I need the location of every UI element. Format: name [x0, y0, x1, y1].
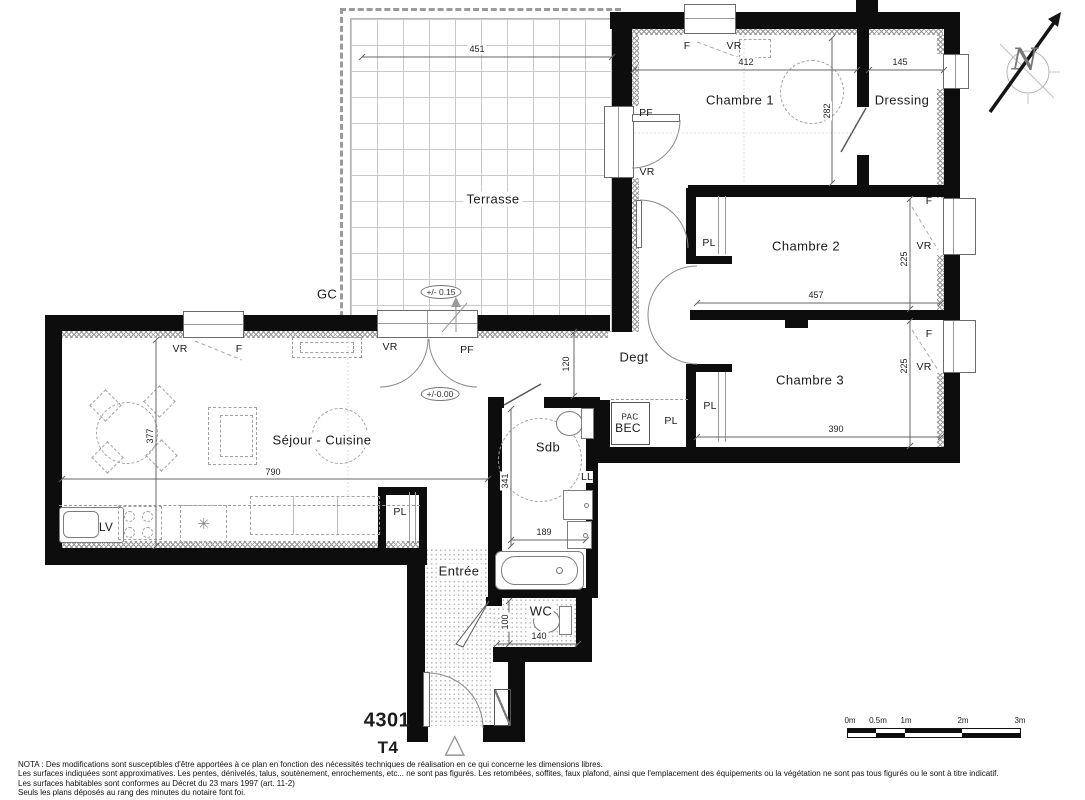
dim-degt-h: 120: [561, 354, 571, 373]
label-pl: PL: [702, 237, 715, 249]
dim-sdb-h: 341: [500, 471, 510, 490]
room-label-degt: Degt: [619, 350, 648, 365]
entry-triangle-icon: △: [444, 729, 465, 760]
dim-ch1-h: 282: [822, 101, 832, 120]
scale-label-1m: 1m: [900, 716, 911, 725]
label-vr: VR: [917, 240, 932, 252]
door-arc-chambre1: [640, 200, 688, 248]
nota-line2: Les surfaces indiquées sont approximativ…: [18, 769, 1080, 778]
label-vr: VR: [383, 341, 398, 353]
dim-ch1-w: 412: [736, 57, 755, 67]
door-arc-chambre3: [648, 315, 697, 364]
label-pf: PF: [460, 344, 474, 356]
nota-text: NOTA : Des modifications sont susceptibl…: [18, 760, 1080, 798]
door-leaf-wc: [456, 601, 489, 647]
construction-lines: [348, 36, 856, 503]
room-label-chambre2: Chambre 2: [772, 239, 840, 254]
plan-type: T4: [378, 738, 399, 758]
room-label-wc: WC: [528, 604, 554, 619]
dim-sdb-w: 189: [534, 527, 553, 537]
dim-ch2-w: 457: [806, 290, 825, 300]
dimension-lines: [59, 35, 947, 647]
nota-line1: NOTA : Des modifications sont susceptibl…: [18, 760, 1080, 769]
label-pl: PL: [393, 506, 406, 518]
dim-sejour-w: 790: [263, 467, 282, 477]
nota-line3: Les surfaces habitables sont conformes a…: [18, 779, 1080, 788]
level-terrace: +/- 0.15: [420, 285, 461, 299]
plan-number: 4301: [364, 710, 411, 733]
dim-ch3-h: 225: [899, 356, 909, 375]
room-label-sdb: Sdb: [534, 440, 562, 455]
label-gc: GC: [317, 287, 337, 302]
floor-plan: ✳: [0, 0, 1085, 800]
label-f: F: [926, 195, 933, 207]
door-arc-chambre1-pf: [632, 120, 680, 168]
room-label-sejour: Séjour - Cuisine: [271, 433, 374, 448]
label-pl: PL: [664, 415, 677, 427]
label-vr: VR: [917, 361, 932, 373]
room-label-entree: Entrée: [437, 564, 482, 579]
dim-wc-h: 100: [500, 612, 510, 631]
door-arc-entry: [428, 673, 483, 728]
room-label-dressing: Dressing: [875, 93, 930, 108]
label-f: F: [236, 343, 243, 355]
label-vr: VR: [727, 40, 742, 52]
dim-ch3-w: 390: [826, 424, 845, 434]
scale-label-05m: 0.5m: [869, 716, 887, 725]
dim-dressing-w: 145: [890, 57, 909, 67]
door-leaf-sdb: [504, 384, 541, 405]
label-bec: BEC: [615, 421, 641, 435]
door-arc-chambre2: [648, 266, 697, 315]
plan-linework: [0, 0, 1085, 800]
dim-sejour-h: 377: [145, 426, 155, 445]
label-ll: LL: [581, 471, 593, 483]
room-label-chambre1: Chambre 1: [706, 93, 774, 108]
compass-north-label: N: [1012, 43, 1039, 78]
scale-label-3m: 3m: [1014, 716, 1025, 725]
room-label-chambre3: Chambre 3: [776, 373, 844, 388]
shutter-diagonals: [195, 42, 938, 370]
label-pl: PL: [703, 400, 716, 412]
threshold-arrowhead: [451, 297, 461, 307]
label-lv: LV: [99, 520, 113, 534]
label-pf: PF: [639, 107, 653, 119]
room-label-terrasse: Terrasse: [463, 192, 522, 207]
door-leaf-dressing: [841, 108, 866, 152]
label-f: F: [684, 40, 691, 52]
nota-line4: Seuls les plans déposés au rang des minu…: [18, 788, 1080, 797]
scale-label-0m: 0m: [844, 716, 855, 725]
dim-ch2-h: 225: [899, 249, 909, 268]
label-f: F: [926, 328, 933, 340]
label-vr: VR: [173, 343, 188, 355]
level-floor: +/-0.00: [421, 387, 460, 401]
label-vr: VR: [640, 166, 655, 178]
dim-terrace-w: 451: [467, 44, 486, 54]
scale-label-2m: 2m: [957, 716, 968, 725]
dim-wc-w: 140: [529, 631, 548, 641]
